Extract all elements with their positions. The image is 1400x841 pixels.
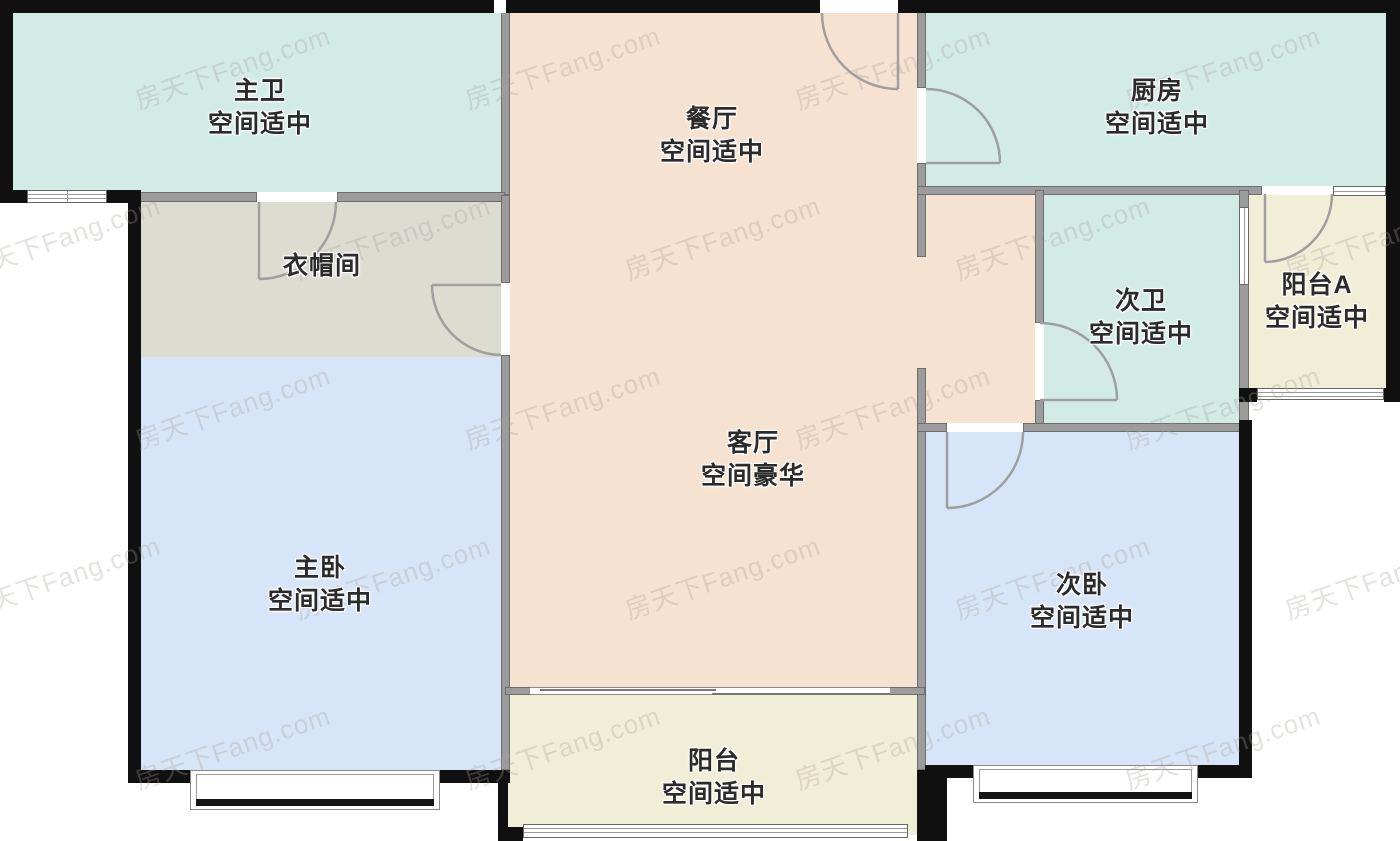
door-arc-entrance	[822, 13, 898, 89]
room-name: 客厅	[603, 427, 903, 460]
room-label-balcony: 阳台 空间适中	[564, 745, 864, 811]
room-desc: 空间适中	[932, 602, 1232, 635]
door-arc-closet	[432, 285, 501, 355]
room-label-dining: 餐厅 空间适中	[562, 103, 862, 169]
room-name: 主卧	[170, 552, 470, 585]
floor-plan: 房天下Fang.com房天下Fang.com房天下Fang.com房天下Fang…	[0, 0, 1400, 841]
room-name: 主卫	[110, 75, 410, 108]
room-desc: 空间适中	[170, 585, 470, 618]
room-label-master-bath: 主卫 空间适中	[110, 75, 410, 141]
room-name: 次卫	[1041, 285, 1241, 318]
door-arc-kitchen	[926, 89, 1000, 163]
room-desc: 空间适中	[110, 108, 410, 141]
door-arc-balcony-a	[1265, 194, 1332, 262]
room-label-second-bed: 次卧 空间适中	[932, 569, 1232, 635]
room-desc: 空间适中	[1007, 108, 1307, 141]
room-label-master-bed: 主卧 空间适中	[170, 552, 470, 618]
room-desc: 空间适中	[1237, 302, 1397, 335]
door-arc-second-bed	[947, 432, 1023, 508]
room-name: 阳台A	[1237, 269, 1397, 302]
room-label-closet: 衣帽间	[222, 250, 422, 283]
room-desc: 空间适中	[562, 136, 862, 169]
room-name: 餐厅	[562, 103, 862, 136]
room-label-second-bath: 次卫 空间适中	[1041, 285, 1241, 351]
room-name: 阳台	[564, 745, 864, 778]
room-desc: 空间适中	[1041, 318, 1241, 351]
room-name: 厨房	[1007, 75, 1307, 108]
room-label-balcony-a: 阳台A 空间适中	[1237, 269, 1397, 335]
room-name: 衣帽间	[222, 250, 422, 283]
room-name: 次卧	[932, 569, 1232, 602]
room-desc: 空间适中	[564, 778, 864, 811]
room-label-living: 客厅 空间豪华	[603, 427, 903, 493]
room-desc: 空间豪华	[603, 460, 903, 493]
room-label-kitchen: 厨房 空间适中	[1007, 75, 1307, 141]
